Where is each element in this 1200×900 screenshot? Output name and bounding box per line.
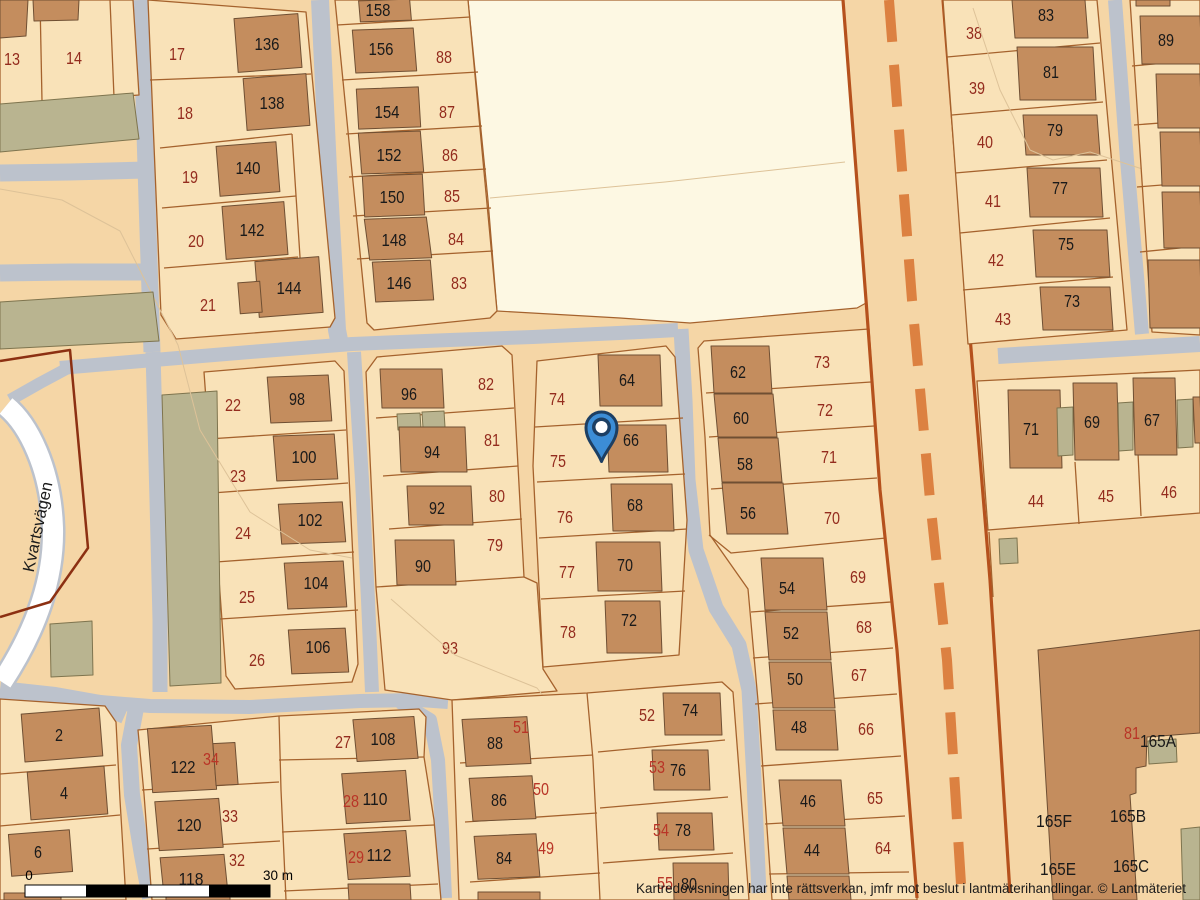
svg-text:136: 136 [255, 34, 280, 54]
svg-text:77: 77 [1052, 178, 1068, 198]
svg-text:17: 17 [169, 44, 185, 64]
svg-text:56: 56 [740, 503, 756, 523]
svg-text:110: 110 [363, 789, 388, 809]
svg-text:44: 44 [804, 840, 820, 860]
svg-text:44: 44 [1028, 491, 1044, 511]
svg-text:84: 84 [448, 229, 464, 249]
svg-text:146: 146 [387, 273, 412, 293]
svg-text:74: 74 [549, 389, 565, 409]
svg-text:41: 41 [985, 191, 1001, 211]
svg-text:108: 108 [371, 729, 396, 749]
svg-text:62: 62 [730, 362, 746, 382]
svg-text:77: 77 [559, 562, 575, 582]
svg-text:45: 45 [1098, 486, 1114, 506]
svg-text:79: 79 [1047, 120, 1063, 140]
svg-text:78: 78 [560, 622, 576, 642]
svg-text:86: 86 [491, 790, 507, 810]
svg-text:76: 76 [670, 760, 686, 780]
svg-text:6: 6 [34, 842, 42, 862]
svg-text:30 m: 30 m [263, 868, 293, 883]
svg-text:64: 64 [619, 370, 635, 390]
svg-text:24: 24 [235, 523, 251, 543]
svg-text:67: 67 [1144, 410, 1160, 430]
svg-text:82: 82 [478, 374, 494, 394]
svg-text:96: 96 [401, 384, 417, 404]
svg-text:144: 144 [277, 278, 302, 298]
svg-text:26: 26 [249, 650, 265, 670]
svg-text:81: 81 [1043, 62, 1059, 82]
svg-text:81: 81 [484, 430, 500, 450]
svg-text:73: 73 [814, 352, 830, 372]
svg-text:27: 27 [335, 732, 351, 752]
svg-text:106: 106 [306, 637, 331, 657]
svg-text:68: 68 [627, 495, 643, 515]
svg-text:112: 112 [367, 845, 392, 865]
svg-text:165A: 165A [1140, 731, 1176, 751]
svg-text:32: 32 [229, 850, 245, 870]
svg-text:87: 87 [439, 102, 455, 122]
svg-text:69: 69 [850, 567, 866, 587]
svg-text:165C: 165C [1113, 856, 1149, 876]
svg-text:28: 28 [343, 791, 359, 811]
svg-text:75: 75 [550, 451, 566, 471]
svg-text:165E: 165E [1040, 859, 1076, 879]
svg-text:53: 53 [649, 757, 665, 777]
svg-text:49: 49 [538, 838, 554, 858]
svg-text:90: 90 [415, 556, 431, 576]
svg-text:88: 88 [487, 733, 503, 753]
svg-text:65: 65 [867, 788, 883, 808]
svg-text:72: 72 [621, 610, 637, 630]
svg-text:50: 50 [533, 779, 549, 799]
svg-text:54: 54 [653, 820, 669, 840]
svg-text:142: 142 [240, 220, 265, 240]
svg-text:13: 13 [4, 49, 20, 69]
svg-text:66: 66 [858, 719, 874, 739]
svg-text:64: 64 [875, 838, 891, 858]
svg-text:104: 104 [304, 573, 329, 593]
svg-text:66: 66 [623, 430, 639, 450]
svg-text:0: 0 [25, 868, 33, 883]
svg-text:152: 152 [377, 145, 402, 165]
svg-text:Kartredovisningen har inte rät: Kartredovisningen har inte rättsverkan, … [636, 881, 1186, 896]
svg-text:60: 60 [733, 408, 749, 428]
svg-text:18: 18 [177, 103, 193, 123]
svg-text:34: 34 [203, 749, 219, 769]
svg-text:138: 138 [260, 93, 285, 113]
svg-text:25: 25 [239, 587, 255, 607]
svg-text:81: 81 [1124, 723, 1140, 743]
svg-text:70: 70 [824, 508, 840, 528]
svg-text:46: 46 [1161, 482, 1177, 502]
svg-text:70: 70 [617, 555, 633, 575]
svg-text:122: 122 [171, 757, 196, 777]
svg-text:68: 68 [856, 617, 872, 637]
svg-text:80: 80 [489, 486, 505, 506]
svg-text:42: 42 [988, 250, 1004, 270]
svg-text:140: 140 [236, 158, 261, 178]
svg-text:39: 39 [969, 78, 985, 98]
svg-text:120: 120 [177, 815, 202, 835]
svg-text:33: 33 [222, 806, 238, 826]
svg-text:54: 54 [779, 578, 795, 598]
svg-text:4: 4 [60, 783, 68, 803]
svg-text:14: 14 [66, 48, 82, 68]
svg-text:52: 52 [783, 623, 799, 643]
svg-text:154: 154 [375, 102, 400, 122]
svg-text:52: 52 [639, 705, 655, 725]
svg-text:69: 69 [1084, 412, 1100, 432]
svg-text:72: 72 [817, 400, 833, 420]
svg-text:20: 20 [188, 231, 204, 251]
svg-text:58: 58 [737, 454, 753, 474]
svg-text:22: 22 [225, 395, 241, 415]
svg-text:21: 21 [200, 295, 216, 315]
svg-text:150: 150 [380, 187, 405, 207]
svg-text:79: 79 [487, 535, 503, 555]
svg-text:88: 88 [436, 47, 452, 67]
svg-text:73: 73 [1064, 291, 1080, 311]
svg-text:43: 43 [995, 309, 1011, 329]
svg-text:29: 29 [348, 847, 364, 867]
svg-text:76: 76 [557, 507, 573, 527]
svg-text:71: 71 [1023, 419, 1039, 439]
svg-text:78: 78 [675, 820, 691, 840]
svg-text:83: 83 [1038, 5, 1054, 25]
svg-text:46: 46 [800, 791, 816, 811]
svg-text:89: 89 [1158, 30, 1174, 50]
svg-text:94: 94 [424, 442, 440, 462]
svg-text:19: 19 [182, 167, 198, 187]
svg-text:50: 50 [787, 669, 803, 689]
svg-text:38: 38 [966, 23, 982, 43]
svg-text:67: 67 [851, 665, 867, 685]
svg-text:148: 148 [382, 230, 407, 250]
svg-text:158: 158 [366, 0, 391, 20]
svg-text:92: 92 [429, 498, 445, 518]
svg-text:83: 83 [451, 273, 467, 293]
svg-text:86: 86 [442, 145, 458, 165]
svg-text:100: 100 [292, 447, 317, 467]
svg-text:165B: 165B [1110, 806, 1146, 826]
svg-text:40: 40 [977, 132, 993, 152]
svg-text:84: 84 [496, 848, 512, 868]
svg-text:165F: 165F [1036, 811, 1072, 831]
svg-text:156: 156 [369, 39, 394, 59]
svg-text:71: 71 [821, 447, 837, 467]
svg-text:75: 75 [1058, 234, 1074, 254]
svg-text:102: 102 [298, 510, 323, 530]
svg-text:2: 2 [55, 725, 63, 745]
svg-text:74: 74 [682, 700, 698, 720]
svg-text:48: 48 [791, 717, 807, 737]
svg-text:98: 98 [289, 389, 305, 409]
svg-text:85: 85 [444, 186, 460, 206]
svg-text:51: 51 [513, 717, 529, 737]
